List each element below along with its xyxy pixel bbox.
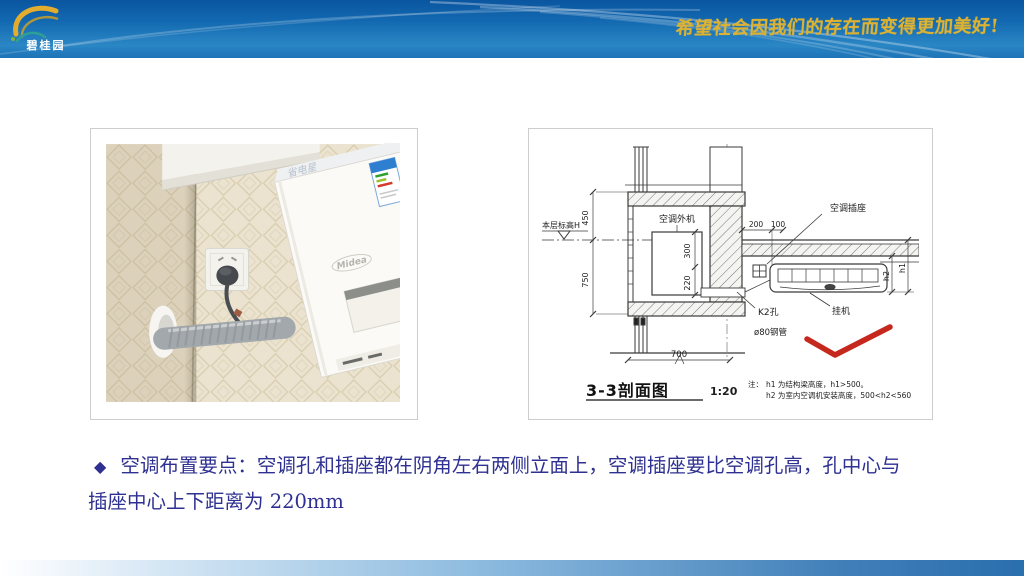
dim-200: 200 [749, 220, 764, 229]
key-points-line1-text: 空调布置要点：空调孔和插座都在阴角左右两侧立面上，空调插座要比空调孔高，孔中心与 [120, 454, 900, 477]
dim-750: 750 [581, 272, 590, 287]
photo-card: 省电星 Midea [90, 128, 418, 420]
drawing-scale: 1:20 [710, 385, 738, 398]
dim-700: 700 [671, 350, 687, 360]
dim-450: 450 [581, 210, 590, 225]
drawing-title: 3-3剖面图 [586, 381, 669, 400]
socket-label: 空调插座 [830, 202, 866, 214]
header-band: 碧桂园 希望社会因我们的存在而变得更加美好! [0, 0, 1024, 58]
outdoor-unit-box [652, 232, 702, 295]
outdoor-unit-label: 空调外机 [659, 213, 695, 225]
company-logo-icon: 碧桂园 [0, 0, 80, 54]
indoor-unit-symbol [770, 264, 887, 292]
key-points-text: ◆空调布置要点：空调孔和插座都在阴角左右两侧立面上，空调插座要比空调孔高，孔中心… [88, 448, 968, 519]
section-drawing: 本层标高H 空调外机 450 750 300 220 200 100 700 空… [540, 140, 919, 406]
slide: 碧桂园 希望社会因我们的存在而变得更加美好! [0, 0, 1024, 576]
dim-100: 100 [771, 220, 786, 229]
level-mark-label: 本层标高H [542, 220, 580, 230]
header-slogan: 希望社会因我们的存在而变得更加美好! [675, 12, 1023, 40]
ac-installation-photo: 省电星 Midea [106, 143, 400, 403]
note-line1: h1 为结构梁高度，h1>500。 [766, 379, 868, 389]
indoor-unit-label: 挂机 [832, 305, 850, 317]
drawing-linework [542, 144, 919, 400]
dim-h1: h1 [898, 263, 907, 273]
key-points-line1: ◆空调布置要点：空调孔和插座都在阴角左右两侧立面上，空调插座要比空调孔高，孔中心… [88, 448, 968, 484]
pipe-label: ø80钢管 [754, 327, 787, 338]
red-checkmark-icon [807, 327, 890, 355]
drawing-card: 本层标高H 空调外机 450 750 300 220 200 100 700 空… [528, 128, 933, 420]
diamond-bullet-icon: ◆ [94, 457, 106, 476]
hole-label: K2孔 [758, 307, 779, 318]
dim-220: 220 [683, 275, 692, 290]
note-prefix: 注： [748, 379, 763, 389]
dim-h2: h2 [882, 271, 891, 281]
note-line2: h2 为室内空调机安装高度，500<h2<560 [766, 390, 911, 400]
key-points-line2: 插座中心上下距离为 220mm [88, 484, 968, 519]
dim-300: 300 [683, 243, 692, 258]
footer-band [0, 560, 1024, 576]
logo-text: 碧桂园 [26, 38, 66, 52]
